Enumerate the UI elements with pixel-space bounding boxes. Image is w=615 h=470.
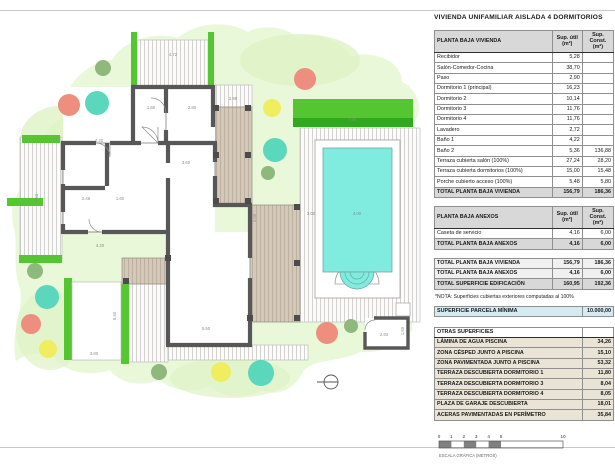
perimeter-sidewalk [168, 345, 308, 360]
pool [315, 140, 400, 298]
table-row: Paso2,90 [435, 73, 614, 83]
dimension-label: 2.00 [252, 213, 257, 222]
tree-salmon [294, 68, 316, 90]
data-panel: VIVIENDA UNIFAMILIAR AISLADA 4 DORMITORI… [432, 12, 613, 470]
table-header-label: OTRAS SUPERFICIES [435, 328, 583, 338]
table-superficie-parcela: SUPERFICIE PARCELA MÍNIMA10.000,00 [434, 306, 614, 317]
table-row: PLAZA DE GARAJE DESCUBIERTA18,01 [435, 400, 614, 410]
table-row: TOTAL PLANTA BAJA VIVIENDA156,79186,36 [435, 258, 614, 268]
table-total-row: TOTAL PLANTA BAJA ANEXOS 4,16 6,00 [435, 239, 614, 249]
table-planta-baja-vivienda: PLANTA BAJA VIVIENDA Sup. útil (m²) Sup.… [434, 30, 614, 198]
table-row: Baño 14,22 [435, 135, 614, 145]
table-row: ZONA CÉSPED JUNTO A PISCINA15,10 [435, 348, 614, 358]
site-plan: 4.722.981.602.804.202.461.603.603.604.20… [0, 0, 432, 454]
dimension-label: 4.72 [169, 52, 178, 57]
table-row: SUPERFICIE PARCELA MÍNIMA10.000,00 [435, 306, 614, 316]
dimension-label: 3.60 [34, 193, 39, 202]
table-row: Recibidor5,28 [435, 52, 614, 62]
dimension-label: 3.80 [90, 351, 99, 356]
drawing-title: VIVIENDA UNIFAMILIAR AISLADA 4 DORMITORI… [434, 14, 613, 21]
table-resumen-totales: TOTAL PLANTA BAJA VIVIENDA156,79186,36TO… [434, 258, 614, 290]
covered-terrace-salon [250, 205, 300, 322]
tree-olive [261, 166, 275, 180]
col-sup-util: Sup. útil (m²) [552, 31, 582, 53]
tree-yellow [211, 362, 231, 382]
scale-tick: 3 [475, 434, 478, 439]
tree-salmon [316, 322, 338, 344]
table-row: Baño 25,36136,88 [435, 146, 614, 156]
dimension-label: 1.60 [400, 326, 405, 335]
tree-olive [27, 263, 43, 279]
entry-walkway-paving [129, 284, 168, 362]
tree-salmon [58, 94, 80, 116]
table-row: Lavadero2,72 [435, 125, 614, 135]
tree-teal [248, 360, 274, 386]
dimension-label: 1.60 [147, 105, 156, 110]
table-otras-superficies: OTRAS SUPERFICIES LÁMINA DE AGUA PISCINA… [434, 327, 614, 421]
deck-detail [396, 303, 410, 316]
table-row: Caseta de servicio4,166,00 [435, 228, 614, 238]
scale-segment [489, 441, 501, 448]
col-sup-util: Sup. útil (m²) [552, 207, 582, 229]
scale-tick: 1 [450, 434, 453, 439]
table-row: Porche cubierto acceso (100%)5,485,80 [435, 177, 614, 187]
table-row: TOTAL SUPERFICIE EDIFICACIÓN160,95192,36 [435, 279, 614, 289]
tree-olive [344, 319, 358, 333]
tree-teal [35, 285, 59, 309]
scale-tick: 0 [438, 434, 441, 439]
table-row: ZONA PAVIMENTADA JUNTO A PISCINA53,32 [435, 358, 614, 368]
table-row: ACERAS PAVIMENTADAS EN PERÍMETRO35,84 [435, 410, 614, 420]
table-header-label: PLANTA BAJA VIVIENDA [435, 31, 553, 53]
scale-tick: 2 [463, 434, 466, 439]
table-row: TOTAL PLANTA BAJA ANEXOS4,166,00 [435, 268, 614, 278]
table-planta-baja-anexos: PLANTA BAJA ANEXOS Sup. útil (m²) Sup. C… [434, 206, 614, 250]
graphic-scale: 01234510ESCALA GRÁFICA (METROS) [434, 431, 614, 465]
scale-segment [464, 441, 476, 448]
drawing-sheet: { "title": "VIVIENDA UNIFAMILIAR AISLADA… [0, 0, 615, 454]
tree-teal [85, 91, 109, 115]
scale-tick: 10 [560, 434, 566, 439]
dimension-label: 3.60 [182, 160, 191, 165]
pool-water [323, 148, 392, 272]
table-header-label: PLANTA BAJA ANEXOS [435, 207, 553, 229]
col-sup-const: Sup. Const. (m²) [582, 31, 613, 53]
dimension-label: 2.98 [229, 96, 238, 101]
dimension-label: 2.93 [380, 332, 389, 337]
dimension-label: 2.80 [188, 105, 197, 110]
terrace-dormitorio1-paving [137, 40, 208, 87]
tree-olive [95, 60, 111, 76]
table-row: Dormitorio 411,76 [435, 115, 614, 125]
table-total-row: TOTAL PLANTA BAJA VIVIENDA 156,79 186,36 [435, 187, 614, 197]
table-row: LÁMINA DE AGUA PISCINA34,26 [435, 337, 614, 347]
table-row: Dormitorio 1 (principal)16,23 [435, 83, 614, 93]
table-row: Terraza cubierta dormitorios (100%)15,00… [435, 166, 614, 176]
table-header-value [582, 328, 613, 338]
table-row: TERRAZA DESCUBIERTA DORMITORIO 111,80 [435, 368, 614, 378]
dimension-label: 5.40 [112, 311, 117, 320]
north-indicator [317, 375, 338, 389]
dimension-label: 3.00 [307, 211, 316, 216]
tree-olive [151, 364, 167, 380]
dimension-label: 5.50 [202, 326, 211, 331]
footnote: *NOTA: Superficies cubiertas exteriores … [435, 294, 613, 300]
table-row: TERRAZA DESCUBIERTA DORMITORIO 38,04 [435, 379, 614, 389]
table-row: TERRAZA DESCUBIERTA DORMITORIO 48,05 [435, 389, 614, 399]
table-row: Terraza cubierta salón (100%)27,2428,20 [435, 156, 614, 166]
tree-yellow [39, 340, 57, 358]
tree-teal [263, 138, 287, 162]
scale-tick: 5 [500, 434, 503, 439]
dimension-label: 2.46 [82, 196, 91, 201]
scale-tick: 4 [487, 434, 490, 439]
col-sup-const: Sup. Const. (m²) [582, 207, 613, 229]
dimension-label: 1.60 [116, 196, 125, 201]
tree-yellow [263, 99, 281, 117]
table-row: Dormitorio 311,76 [435, 104, 614, 114]
dimension-label: 4.20 [96, 243, 105, 248]
scale-segment [439, 441, 451, 448]
dimension-label: 4.00 [353, 211, 362, 216]
dimension-label: 7.50 [348, 117, 357, 122]
dimension-label: 4.20 [95, 138, 104, 143]
table-row: Salón-Comedor-Cocina38,70 [435, 63, 614, 73]
tree-salmon [21, 314, 41, 334]
table-row: Dormitorio 210,14 [435, 94, 614, 104]
